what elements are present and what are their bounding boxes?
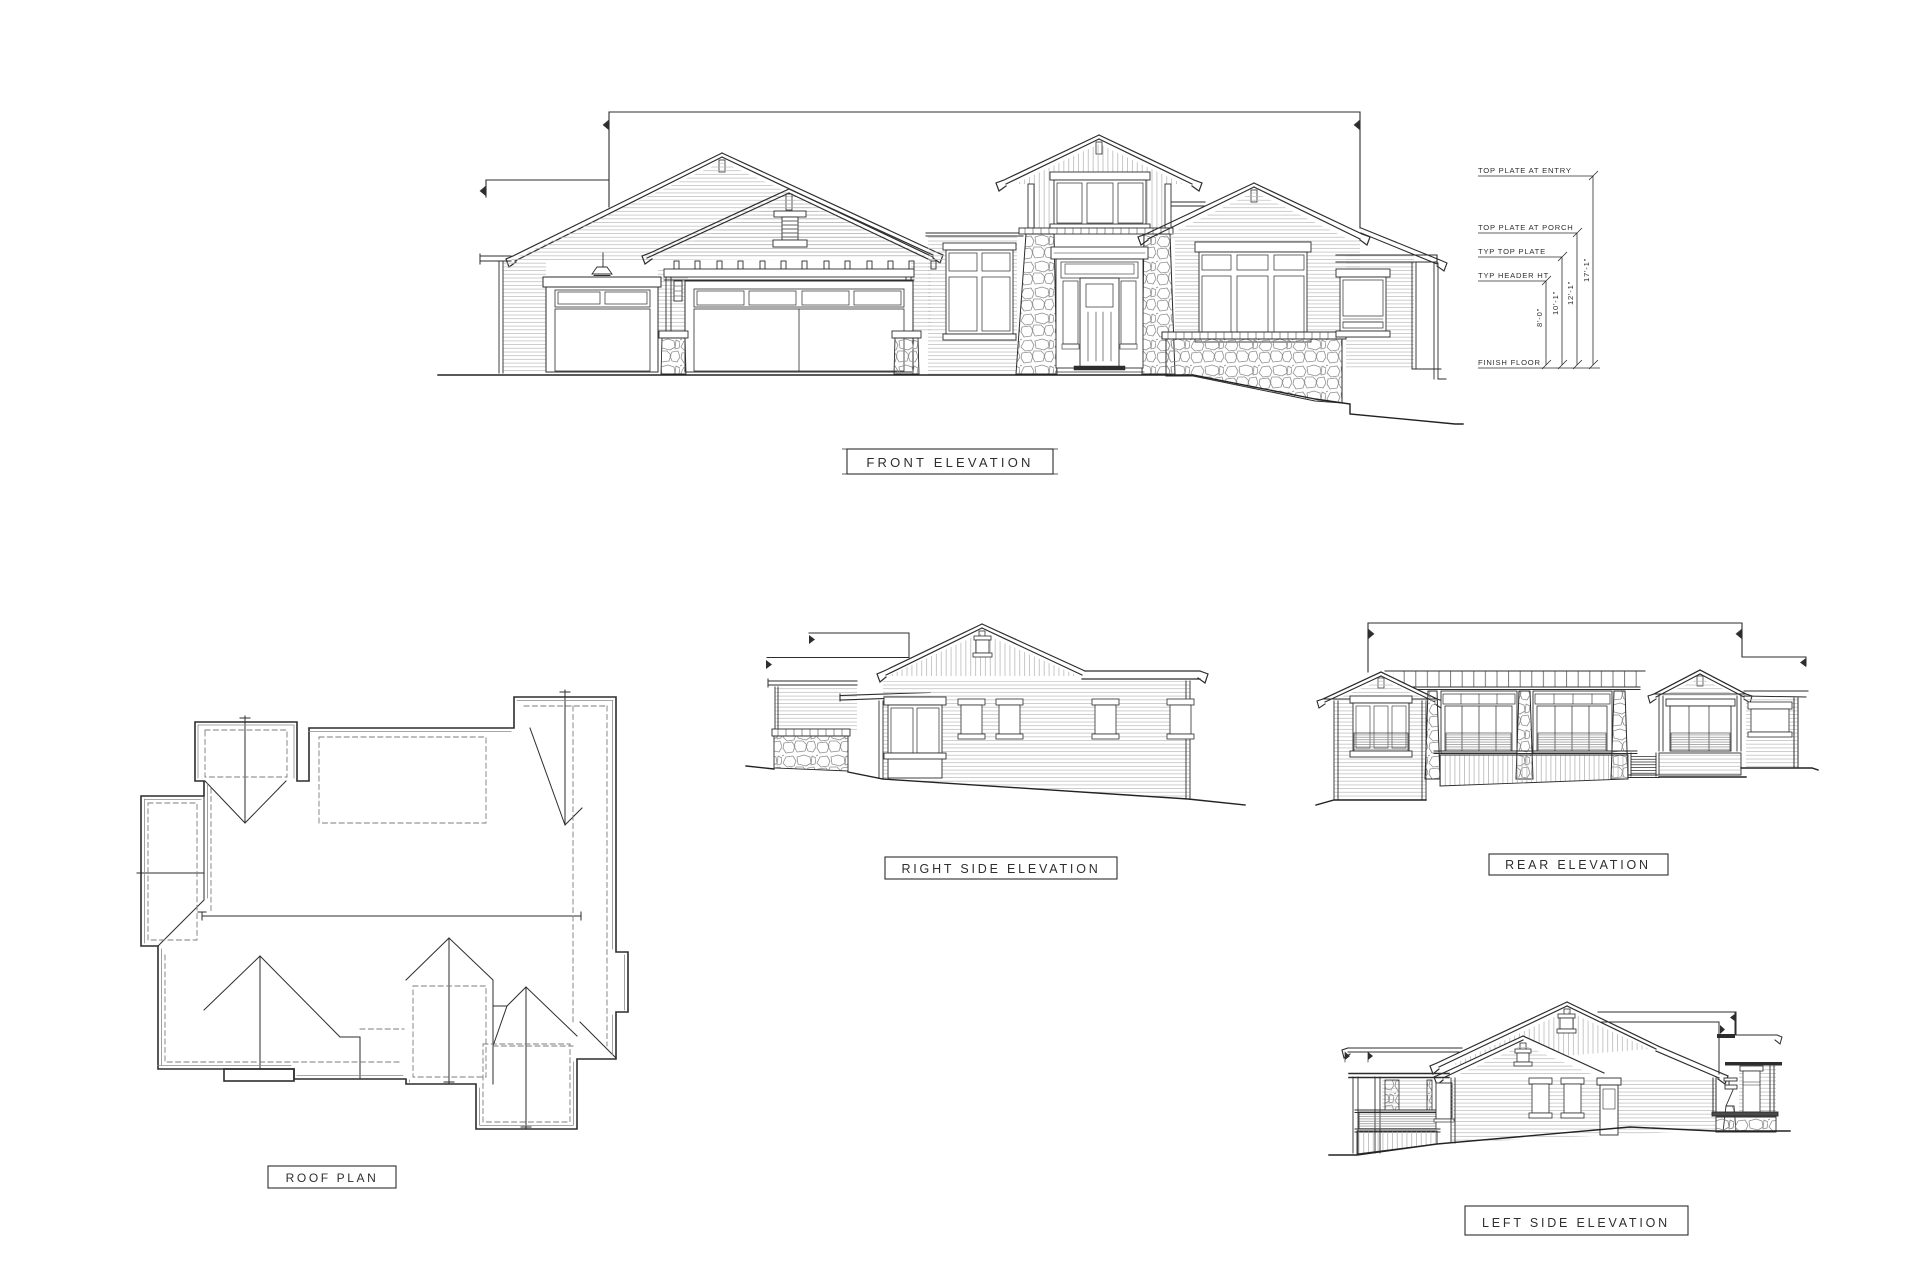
svg-text:TOP PLATE AT ENTRY: TOP PLATE AT ENTRY: [1478, 166, 1572, 175]
svg-text:FRONT ELEVATION: FRONT ELEVATION: [866, 455, 1033, 470]
svg-text:12'-1": 12'-1": [1566, 281, 1575, 305]
svg-text:REAR ELEVATION: REAR ELEVATION: [1505, 858, 1651, 872]
svg-text:FINISH FLOOR: FINISH FLOOR: [1478, 358, 1541, 367]
svg-text:10'-1": 10'-1": [1551, 291, 1560, 315]
svg-text:TYP TOP PLATE: TYP TOP PLATE: [1478, 247, 1546, 256]
svg-text:LEFT SIDE ELEVATION: LEFT SIDE ELEVATION: [1482, 1216, 1670, 1230]
svg-text:17'-1": 17'-1": [1582, 258, 1591, 282]
svg-text:8'-0": 8'-0": [1535, 308, 1544, 327]
svg-text:TOP PLATE AT PORCH: TOP PLATE AT PORCH: [1478, 223, 1574, 232]
svg-text:ROOF PLAN: ROOF PLAN: [286, 1171, 379, 1185]
svg-text:TYP HEADER HT: TYP HEADER HT: [1478, 271, 1549, 280]
svg-text:RIGHT SIDE ELEVATION: RIGHT SIDE ELEVATION: [901, 862, 1100, 876]
